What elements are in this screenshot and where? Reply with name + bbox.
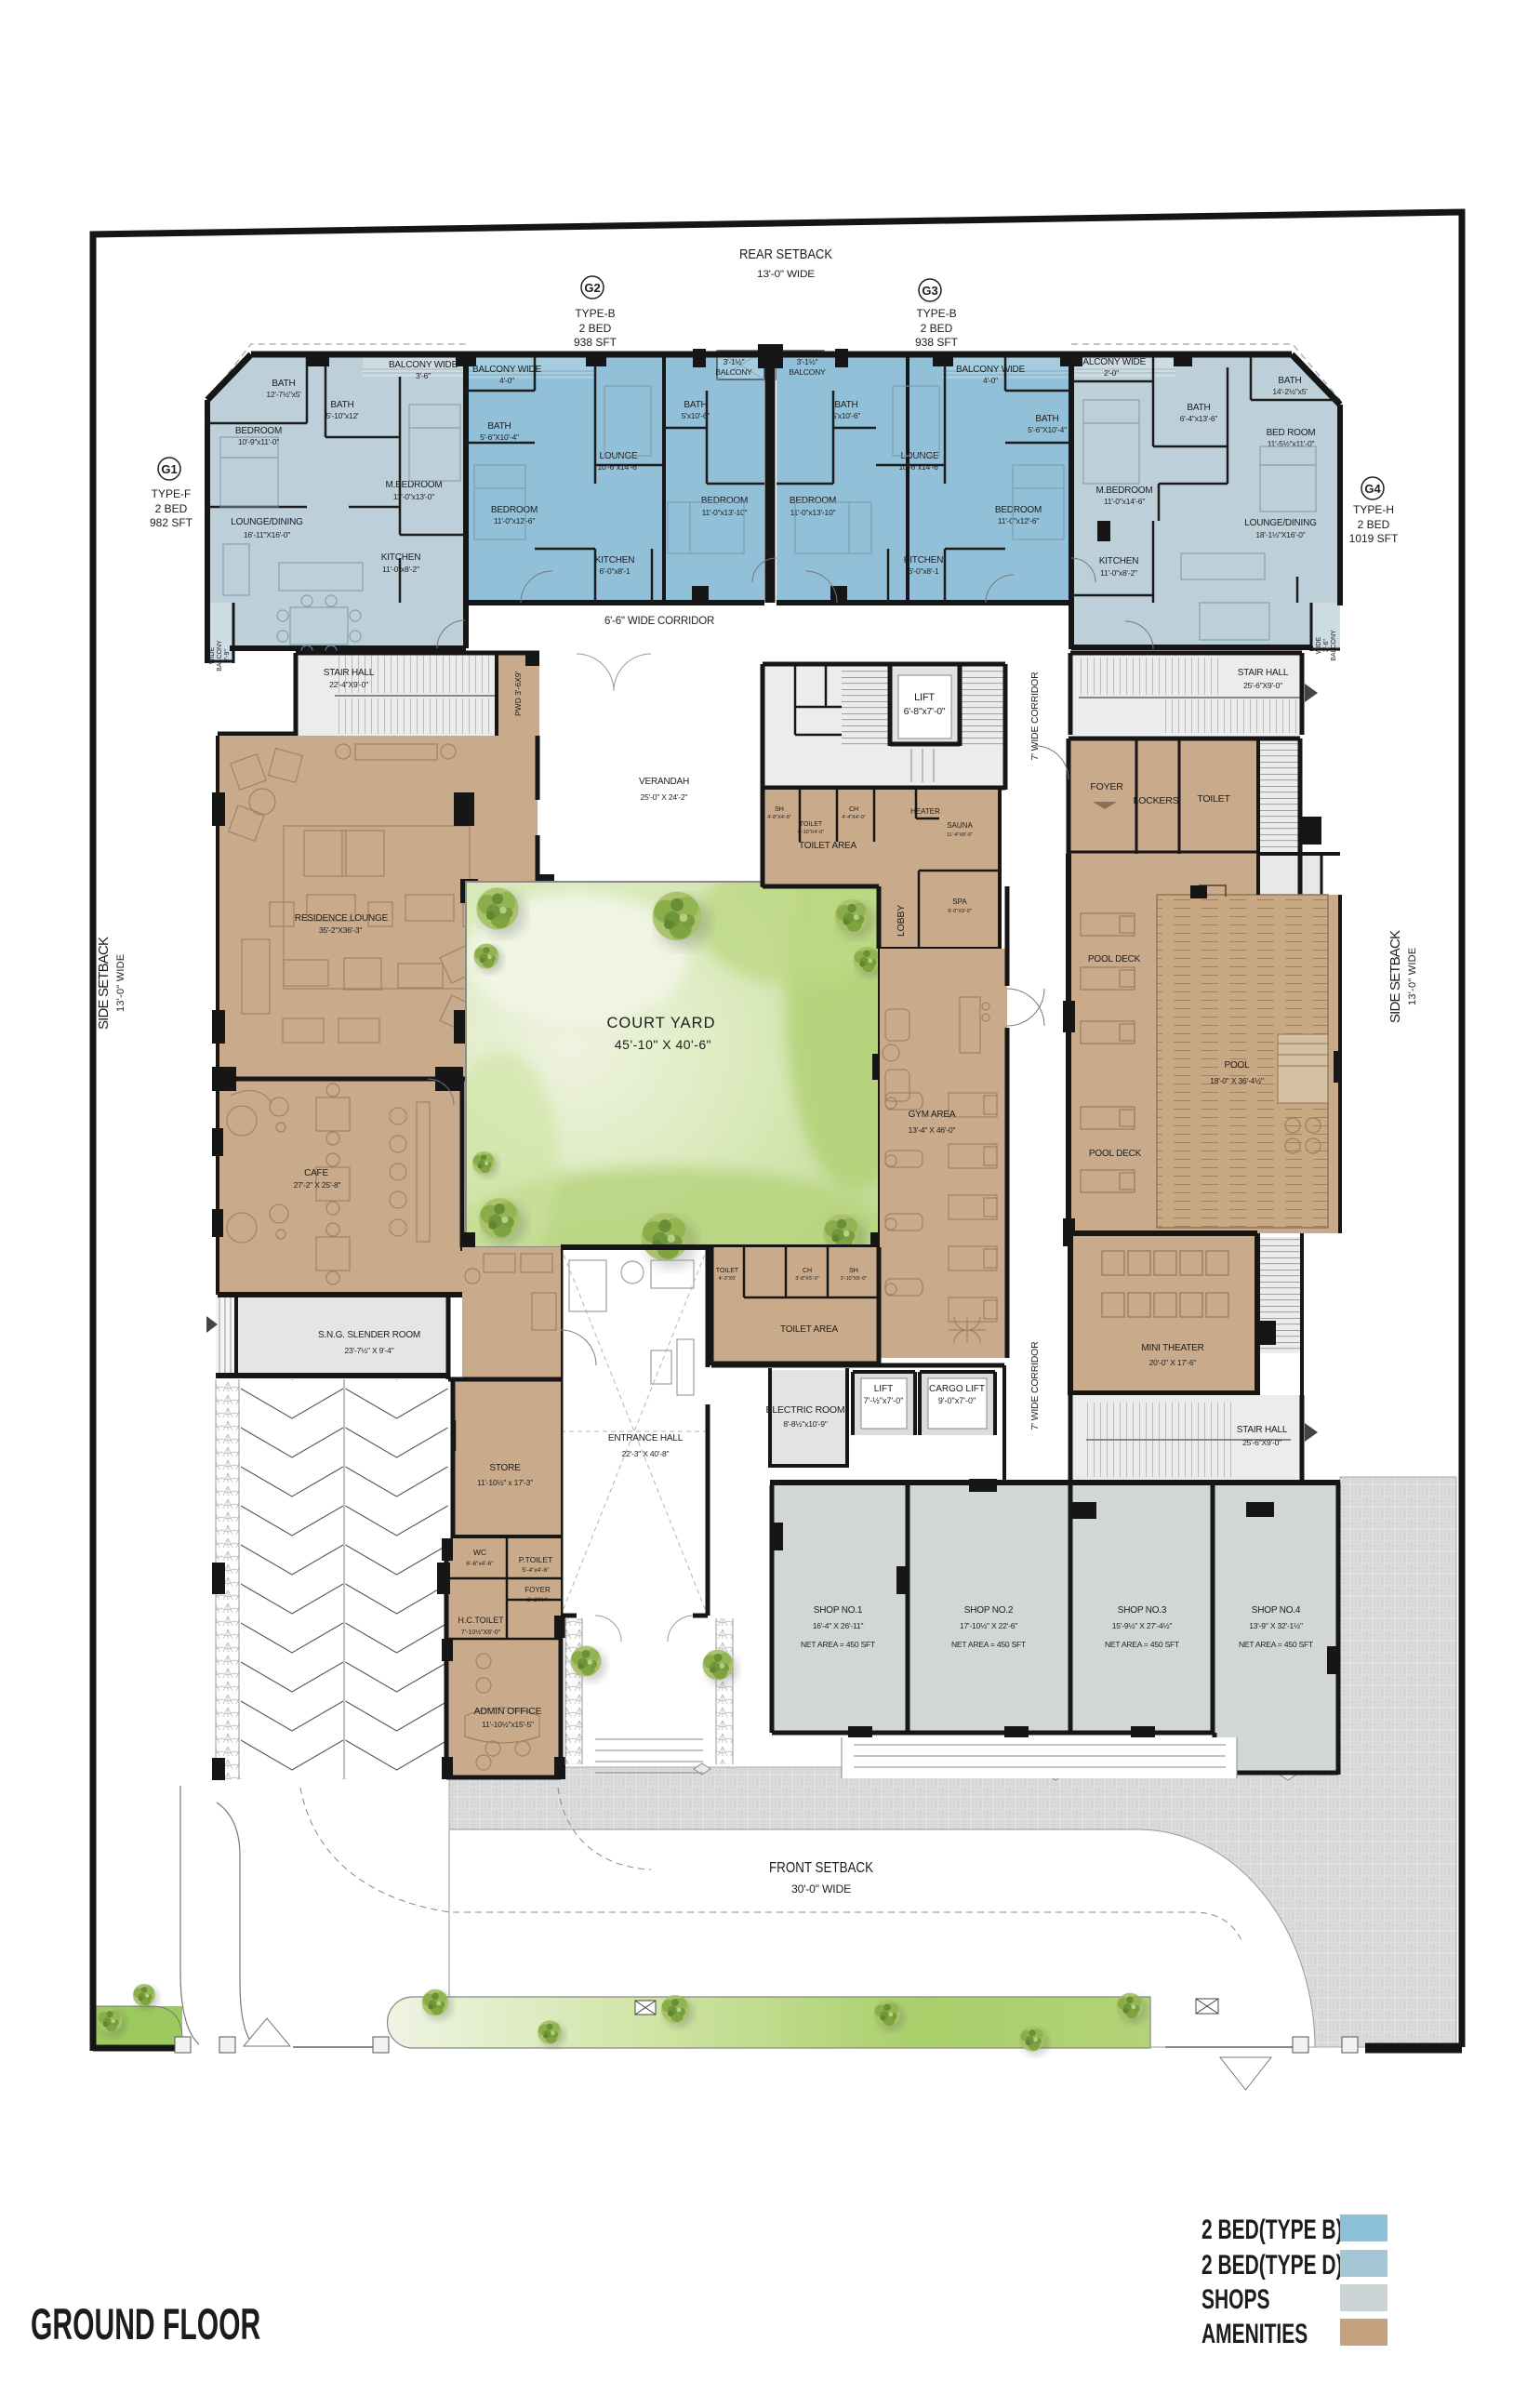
svg-text:3'-8"X4': 3'-8"X4': [527, 1597, 548, 1603]
svg-text:25'-6"X9'-0": 25'-6"X9'-0": [1243, 681, 1282, 690]
svg-text:16'-11"X16'-0": 16'-11"X16'-0": [244, 530, 290, 539]
svg-text:7' WIDE CORRIDOR: 7' WIDE CORRIDOR: [1029, 672, 1041, 761]
svg-text:LOCKERS: LOCKERS: [1134, 795, 1179, 806]
svg-text:SHOP NO.1: SHOP NO.1: [814, 1605, 863, 1616]
svg-text:BATH: BATH: [1278, 376, 1301, 386]
svg-text:BATH: BATH: [330, 400, 353, 410]
svg-text:NET AREA = 450 SFT: NET AREA = 450 SFT: [1239, 1640, 1313, 1649]
svg-text:POOL DECK: POOL DECK: [1088, 954, 1141, 964]
svg-text:6'-4"x13'-6": 6'-4"x13'-6": [1180, 414, 1218, 423]
svg-text:4'-3"X5': 4'-3"X5': [719, 1276, 737, 1282]
svg-text:3'-10"X5'-0": 3'-10"X5'-0": [841, 1276, 868, 1282]
svg-text:982 SFT: 982 SFT: [150, 516, 193, 529]
svg-text:FOYER: FOYER: [1090, 781, 1123, 792]
svg-text:2 BED: 2 BED: [579, 322, 612, 335]
svg-text:1019 SFT: 1019 SFT: [1349, 532, 1399, 545]
svg-text:CH: CH: [849, 806, 858, 813]
svg-text:16'-4" X 26'-11": 16'-4" X 26'-11": [813, 1621, 864, 1630]
svg-text:5'-6"X10'-4": 5'-6"X10'-4": [1028, 425, 1067, 434]
svg-text:G3: G3: [922, 284, 937, 298]
svg-text:13'-0" WIDE: 13'-0" WIDE: [757, 269, 815, 280]
svg-text:MINI THEATER: MINI THEATER: [1141, 1343, 1203, 1353]
svg-text:M.BEDROOM: M.BEDROOM: [386, 480, 443, 490]
svg-text:BEDROOM: BEDROOM: [701, 496, 748, 506]
svg-text:2 BED: 2 BED: [921, 322, 953, 335]
svg-text:18'-0" X 36'-4½": 18'-0" X 36'-4½": [1210, 1076, 1264, 1085]
svg-text:LOBBY: LOBBY: [896, 905, 907, 937]
svg-text:COURT YARD: COURT YARD: [607, 1015, 716, 1031]
svg-text:BALCONY: BALCONY: [789, 367, 826, 377]
svg-text:KITCHEN: KITCHEN: [1099, 556, 1139, 566]
svg-text:P.TOILET: P.TOILET: [519, 1555, 553, 1564]
svg-text:TOILET: TOILET: [716, 1268, 739, 1274]
svg-text:20'-0" X 17'-6": 20'-0" X 17'-6": [1149, 1358, 1197, 1367]
svg-text:27'-2" X 25'-8": 27'-2" X 25'-8": [294, 1180, 341, 1190]
svg-text:22'-4"X9'-0": 22'-4"X9'-0": [329, 680, 368, 689]
svg-text:ADMIN OFFICE: ADMIN OFFICE: [474, 1706, 542, 1717]
svg-text:3'-6": 3'-6": [1323, 639, 1330, 652]
svg-text:GYM AREA: GYM AREA: [909, 1110, 956, 1120]
svg-text:GROUND FLOOR: GROUND FLOOR: [31, 2300, 260, 2348]
svg-text:SH: SH: [775, 806, 784, 813]
svg-text:6'-0"x8'-1: 6'-0"x8'-1: [599, 566, 631, 576]
svg-text:11'-0"x13'-0": 11'-0"x13'-0": [393, 492, 435, 501]
svg-text:4'-8"X4'-8": 4'-8"X4'-8": [767, 815, 791, 820]
svg-text:3'-6": 3'-6": [416, 371, 431, 380]
svg-text:11'-4"X8'-6": 11'-4"X8'-6": [947, 832, 973, 838]
svg-text:POOL: POOL: [1225, 1060, 1251, 1071]
svg-text:5'x10'-6": 5'x10'-6": [832, 411, 861, 420]
svg-text:HEATER: HEATER: [910, 807, 940, 816]
svg-text:LIFT: LIFT: [914, 692, 935, 703]
svg-text:25'-0" X 24'-2": 25'-0" X 24'-2": [641, 792, 688, 802]
svg-text:KITCHEN: KITCHEN: [904, 555, 944, 565]
svg-text:CAFE: CAFE: [304, 1168, 328, 1178]
svg-text:SH: SH: [849, 1268, 858, 1274]
svg-text:BATH: BATH: [487, 421, 511, 432]
svg-text:TOILET: TOILET: [1197, 793, 1230, 805]
svg-text:3'-1½": 3'-1½": [724, 357, 745, 366]
svg-text:17'-10½" X 22'-6": 17'-10½" X 22'-6": [960, 1621, 1017, 1630]
svg-text:9'-0"X9'-0": 9'-0"X9'-0": [948, 909, 972, 914]
svg-text:BATH: BATH: [272, 379, 295, 389]
svg-text:2 BED: 2 BED: [155, 502, 188, 515]
svg-text:REAR SETBACK: REAR SETBACK: [739, 246, 832, 262]
svg-text:PWD 3'-6X9': PWD 3'-6X9': [513, 672, 523, 716]
svg-text:5'-6"X10'-4": 5'-6"X10'-4": [480, 432, 519, 442]
svg-text:11'-0"x8'-2": 11'-0"x8'-2": [1100, 568, 1137, 578]
svg-text:M.BEDROOM: M.BEDROOM: [1096, 486, 1153, 496]
svg-text:BATH: BATH: [834, 400, 857, 410]
svg-text:ENTRANCE HALL: ENTRANCE HALL: [608, 1433, 684, 1443]
svg-text:TOILET AREA: TOILET AREA: [780, 1324, 838, 1335]
svg-text:BALCONY WIDE: BALCONY WIDE: [956, 365, 1026, 375]
svg-text:S.N.G. SLENDER ROOM: S.N.G. SLENDER ROOM: [318, 1330, 420, 1340]
svg-text:BEDROOM: BEDROOM: [235, 426, 282, 436]
svg-text:6'-8"x7'-0": 6'-8"x7'-0": [904, 706, 946, 717]
svg-text:LIFT: LIFT: [874, 1384, 894, 1394]
svg-text:TYPE-H: TYPE-H: [1353, 503, 1394, 516]
svg-text:SHOP NO.4: SHOP NO.4: [1252, 1605, 1301, 1616]
svg-text:35'-2"X36'-3": 35'-2"X36'-3": [319, 925, 363, 935]
svg-text:22'-3" X 40'-8": 22'-3" X 40'-8": [622, 1449, 670, 1458]
svg-text:TYPE-F: TYPE-F: [152, 487, 192, 500]
svg-text:BEDROOM: BEDROOM: [491, 505, 538, 515]
svg-text:SHOP NO.3: SHOP NO.3: [1118, 1605, 1167, 1616]
svg-text:BEDROOM: BEDROOM: [995, 505, 1042, 515]
svg-text:BALCONY WIDE: BALCONY WIDE: [472, 365, 542, 375]
svg-text:WIDE: WIDE: [209, 647, 216, 665]
svg-text:10'-9"x11'-0": 10'-9"x11'-0": [238, 437, 280, 446]
svg-text:BALCONY: BALCONY: [715, 367, 752, 377]
svg-text:7' WIDE CORRIDOR: 7' WIDE CORRIDOR: [1029, 1341, 1041, 1430]
svg-text:KITCHEN: KITCHEN: [381, 552, 421, 563]
svg-text:LOUNGE/DINING: LOUNGE/DINING: [1244, 518, 1317, 528]
svg-text:CARGO LIFT: CARGO LIFT: [929, 1384, 985, 1394]
svg-text:13'-4" X 46'-0": 13'-4" X 46'-0": [909, 1125, 956, 1135]
svg-text:4'-10"X4'-0": 4'-10"X4'-0": [798, 830, 825, 835]
svg-text:2 BED(TYPE B): 2 BED(TYPE B): [1201, 2215, 1343, 2245]
svg-text:11'-0"x12'-6": 11'-0"x12'-6": [494, 516, 536, 525]
svg-text:NET AREA = 450 SFT: NET AREA = 450 SFT: [801, 1640, 875, 1649]
svg-text:6'-0"x8'-1: 6'-0"x8'-1: [908, 566, 939, 576]
svg-text:G2: G2: [584, 281, 600, 295]
svg-text:BED ROOM: BED ROOM: [1267, 428, 1316, 438]
svg-text:BATH: BATH: [1187, 403, 1210, 413]
svg-text:8'-8½"x10'-9": 8'-8½"x10'-9": [783, 1419, 827, 1429]
svg-text:7'-½"x7'-0": 7'-½"x7'-0": [864, 1396, 904, 1405]
svg-text:11'-0"x14'-6": 11'-0"x14'-6": [1104, 497, 1146, 506]
svg-text:13'-9" X 32'-1½": 13'-9" X 32'-1½": [1249, 1621, 1303, 1630]
svg-text:13'-0" WIDE: 13'-0" WIDE: [1407, 948, 1418, 1005]
svg-text:POOL DECK: POOL DECK: [1089, 1149, 1142, 1159]
svg-text:SHOP NO.2: SHOP NO.2: [964, 1605, 1014, 1616]
svg-text:BALCONY WIDE: BALCONY WIDE: [389, 360, 458, 370]
svg-text:11'-0"x13'-10": 11'-0"x13'-10": [790, 508, 836, 517]
svg-text:TYPE-B: TYPE-B: [916, 307, 956, 320]
svg-text:2 BED(TYPE D): 2 BED(TYPE D): [1201, 2251, 1343, 2281]
svg-text:WC: WC: [473, 1548, 486, 1557]
svg-text:11'-0"x13'-10": 11'-0"x13'-10": [702, 508, 748, 517]
svg-text:TYPE-B: TYPE-B: [575, 307, 615, 320]
svg-text:FRONT SETBACK: FRONT SETBACK: [769, 1860, 873, 1876]
svg-text:WIDE: WIDE: [1316, 637, 1322, 655]
svg-text:11'-10½"x15'-5": 11'-10½"x15'-5": [482, 1720, 534, 1729]
svg-text:TOILET AREA: TOILET AREA: [799, 841, 856, 851]
svg-text:BALCONY: BALCONY: [1331, 630, 1337, 661]
svg-text:BATH: BATH: [1035, 414, 1058, 424]
svg-text:6'-6" WIDE CORRIDOR: 6'-6" WIDE CORRIDOR: [604, 616, 714, 627]
svg-text:25'-6"X9'-0": 25'-6"X9'-0": [1242, 1438, 1281, 1447]
svg-text:30'-0" WIDE: 30'-0" WIDE: [791, 1882, 851, 1895]
svg-text:STORE: STORE: [489, 1463, 521, 1473]
svg-text:H.C.TOILET: H.C.TOILET: [458, 1616, 504, 1625]
svg-text:12'-7½"x5': 12'-7½"x5': [266, 390, 301, 399]
svg-text:BEDROOM: BEDROOM: [790, 496, 836, 506]
svg-text:2'-9": 2'-9": [224, 649, 231, 662]
svg-text:11'-0"x12'-6": 11'-0"x12'-6": [998, 516, 1040, 525]
svg-text:G1: G1: [161, 462, 177, 476]
svg-text:KITCHEN: KITCHEN: [595, 555, 635, 565]
svg-text:5'x10'-6": 5'x10'-6": [682, 411, 710, 420]
svg-text:SHOPS: SHOPS: [1201, 2285, 1269, 2315]
svg-text:5'-4"x4'-6": 5'-4"x4'-6": [522, 1567, 550, 1574]
svg-text:RESIDENCE LOUNGE: RESIDENCE LOUNGE: [295, 913, 389, 924]
svg-text:45'-10" X 40'-6": 45'-10" X 40'-6": [615, 1037, 711, 1052]
svg-text:938 SFT: 938 SFT: [574, 336, 617, 349]
svg-text:5'-10"x12': 5'-10"x12': [326, 411, 360, 420]
svg-text:938 SFT: 938 SFT: [915, 336, 959, 349]
svg-text:NET AREA = 450 SFT: NET AREA = 450 SFT: [951, 1640, 1026, 1649]
svg-text:STAIR HALL: STAIR HALL: [324, 668, 375, 678]
svg-text:2 BED: 2 BED: [1358, 518, 1390, 531]
svg-text:18'-1½"X16'-0": 18'-1½"X16'-0": [1255, 530, 1305, 539]
svg-text:4'-0": 4'-0": [983, 376, 998, 385]
svg-text:SPA: SPA: [952, 898, 967, 906]
svg-text:6'-6"x4'-6": 6'-6"x4'-6": [466, 1561, 494, 1567]
svg-text:CH: CH: [803, 1268, 812, 1274]
svg-text:2'-0": 2'-0": [1104, 368, 1119, 378]
svg-text:STAIR HALL: STAIR HALL: [1238, 668, 1289, 678]
svg-text:NET AREA = 450 SFT: NET AREA = 450 SFT: [1105, 1640, 1179, 1649]
svg-text:ELECTRIC ROOM: ELECTRIC ROOM: [766, 1404, 845, 1416]
svg-text:10'-6"x14'-6": 10'-6"x14'-6": [598, 462, 640, 472]
svg-text:3'-1½": 3'-1½": [797, 357, 818, 366]
svg-text:BATH: BATH: [684, 400, 707, 410]
svg-text:7'-10½"X6'-0": 7'-10½"X6'-0": [461, 1629, 501, 1636]
svg-text:SIDE SETBACK: SIDE SETBACK: [1387, 930, 1403, 1023]
svg-text:14'-2½"x5': 14'-2½"x5': [1272, 387, 1308, 396]
svg-text:G4: G4: [1364, 482, 1381, 496]
svg-text:23'-7½" X 9'-4": 23'-7½" X 9'-4": [344, 1346, 393, 1355]
svg-text:3'-8"X5'-0": 3'-8"X5'-0": [795, 1276, 819, 1282]
svg-text:13'-0" WIDE: 13'-0" WIDE: [115, 954, 126, 1012]
svg-text:LOUNGE/DINING: LOUNGE/DINING: [231, 517, 303, 527]
svg-text:STAIR HALL: STAIR HALL: [1237, 1425, 1288, 1435]
svg-text:11'-10½" x 17'-3": 11'-10½" x 17'-3": [477, 1478, 533, 1487]
svg-text:VERANDAH: VERANDAH: [639, 777, 689, 787]
svg-text:BALCONY WIDE: BALCONY WIDE: [1077, 357, 1147, 367]
svg-text:4'-4"X4'-0": 4'-4"X4'-0": [842, 815, 866, 820]
svg-text:4'-0": 4'-0": [499, 376, 514, 385]
svg-text:TOILET: TOILET: [800, 821, 823, 828]
svg-text:11'-0"x8'-2": 11'-0"x8'-2": [382, 565, 419, 574]
svg-text:AMENITIES: AMENITIES: [1201, 2320, 1308, 2349]
svg-text:SIDE SETBACK: SIDE SETBACK: [96, 937, 112, 1030]
svg-text:9'-0"x7'-0": 9'-0"x7'-0": [938, 1396, 976, 1405]
svg-text:BALCONY: BALCONY: [217, 640, 223, 672]
svg-text:FOYER: FOYER: [524, 1586, 551, 1594]
svg-text:10'-6"x14'-6": 10'-6"x14'-6": [899, 462, 941, 472]
svg-text:15'-9½" X 27'-4½": 15'-9½" X 27'-4½": [1112, 1621, 1173, 1630]
svg-text:SAUNA: SAUNA: [947, 821, 973, 830]
